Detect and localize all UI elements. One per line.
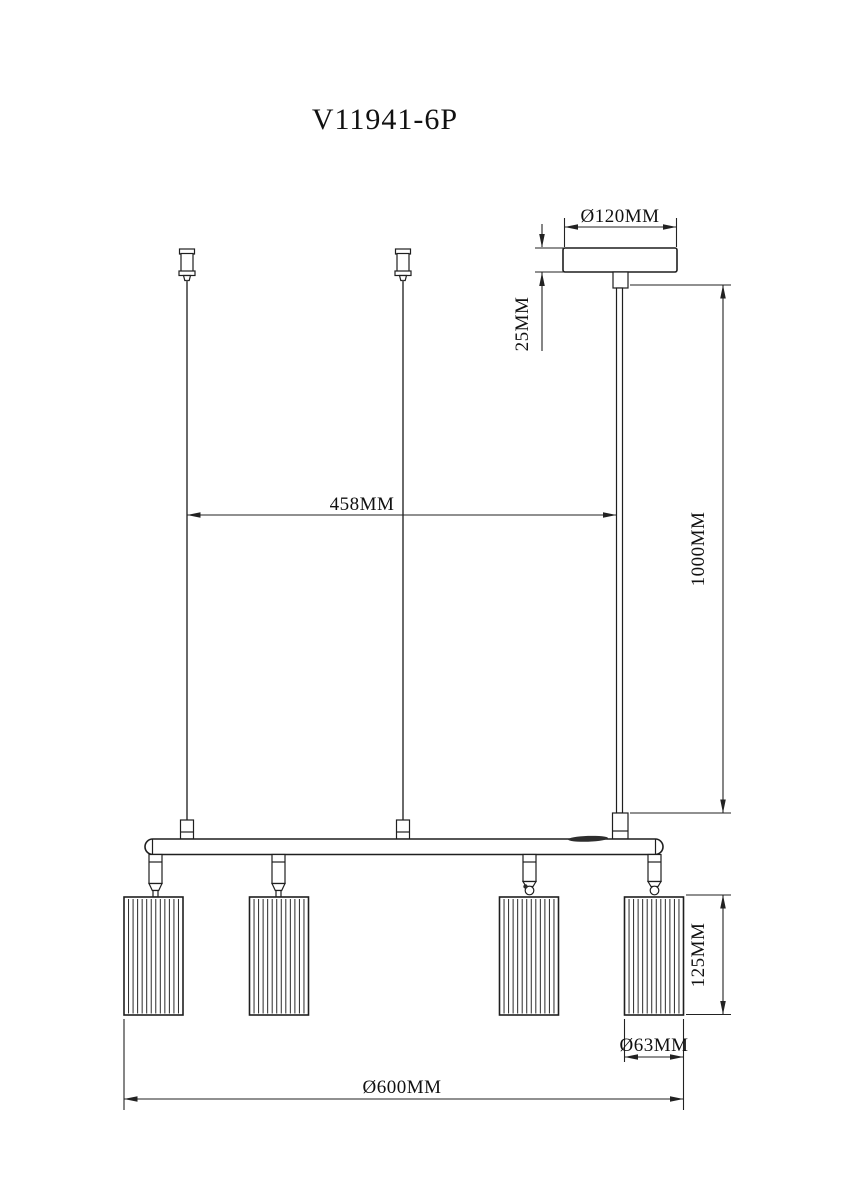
drawing-canvas: V11941-6P Ø120MM 25MM 1000MM xyxy=(0,0,848,1200)
lamp-shade-1 xyxy=(124,897,183,1015)
suspension-wire-middle xyxy=(395,249,411,839)
dim-overall-diameter: Ø600MM xyxy=(124,1019,684,1110)
dim-suspension-spacing: 458MM xyxy=(187,494,617,518)
shade-height-label: 125MM xyxy=(688,923,709,988)
canopy-diameter-label: Ø120MM xyxy=(580,206,659,227)
shade-diameter-label: Ø63MM xyxy=(619,1035,688,1056)
model-number-title: V11941-6P xyxy=(312,103,458,136)
dim-canopy-height: 25MM xyxy=(512,224,564,351)
lamp-shade-4 xyxy=(625,897,684,1015)
lamp-shade-3 xyxy=(500,897,559,1015)
dim-drop-length: 1000MM xyxy=(630,285,731,813)
dim-shade-diameter: Ø63MM xyxy=(619,1019,688,1110)
lamp-holder-4 xyxy=(648,855,661,895)
drop-length-label: 1000MM xyxy=(688,512,709,587)
pendant-lamp-drawing: V11941-6P Ø120MM 25MM 1000MM xyxy=(0,0,848,1200)
ceiling-canopy xyxy=(563,248,677,272)
lamp-holder-1 xyxy=(149,855,162,898)
dim-canopy-diameter: Ø120MM xyxy=(565,206,677,247)
overall-diameter-label: Ø600MM xyxy=(362,1077,441,1098)
suspension-wire-left xyxy=(179,249,195,839)
lamp-holder-3 xyxy=(523,855,536,895)
dim-shade-height: 125MM xyxy=(686,895,731,1015)
canopy-height-label: 25MM xyxy=(512,297,533,352)
lamp-shade-2 xyxy=(250,897,309,1015)
suspension-rod xyxy=(613,272,629,839)
suspension-spacing-label: 458MM xyxy=(330,494,395,515)
lamp-holder-2 xyxy=(272,855,285,898)
